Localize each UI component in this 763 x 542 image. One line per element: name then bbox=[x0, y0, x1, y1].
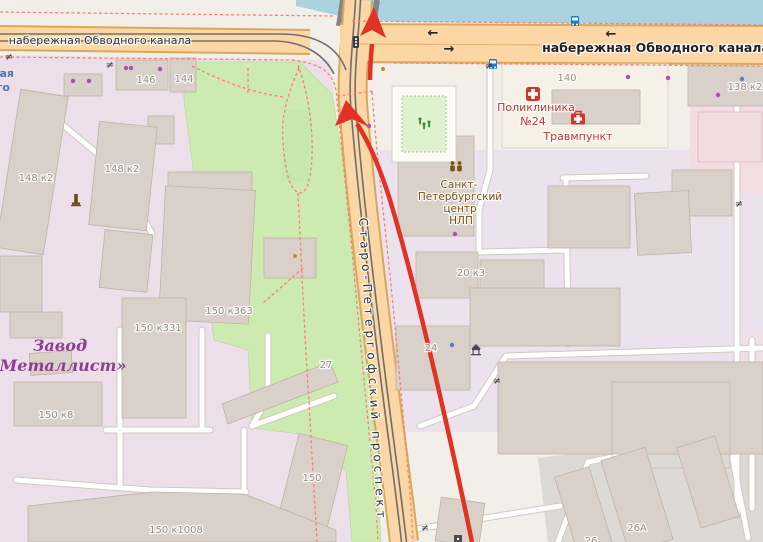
poi-label-nlp: центр bbox=[443, 203, 477, 215]
house-number: 150 к331 bbox=[134, 323, 181, 334]
building bbox=[548, 186, 630, 248]
water-label-fragment: ая bbox=[0, 67, 14, 80]
gate-icon: ≠ bbox=[485, 61, 493, 72]
poi-label-nlp: НЛП bbox=[449, 215, 473, 227]
house-number: 20 к3 bbox=[457, 268, 485, 279]
oneway-arrow: ← bbox=[428, 26, 439, 41]
building bbox=[99, 230, 153, 293]
gate-icon: ≠ bbox=[421, 523, 429, 534]
map-canvas[interactable]: набережная Обводного канала ← ← → → набе… bbox=[0, 0, 763, 542]
bus-stop-icon bbox=[571, 16, 579, 26]
building bbox=[0, 256, 42, 312]
house-number: 148 к2 bbox=[105, 164, 140, 175]
house-number: 138 к2 bbox=[728, 82, 763, 93]
house-number: 150 к363 bbox=[205, 306, 252, 317]
building bbox=[498, 362, 763, 454]
oneway-arrow: → bbox=[444, 42, 455, 57]
building-150k331 bbox=[122, 298, 186, 418]
clinic-cross-icon bbox=[526, 87, 540, 101]
poi-label-nlp: Петербургский bbox=[418, 191, 502, 203]
house-number: 24 bbox=[425, 343, 438, 354]
water-label-fragment: го bbox=[0, 81, 10, 94]
house-number: 150 к8 bbox=[39, 410, 74, 421]
building-148k2 bbox=[89, 121, 158, 230]
building bbox=[264, 238, 316, 278]
poi-label-factory: Завод bbox=[33, 336, 87, 355]
building bbox=[64, 74, 102, 96]
house-number: 140 bbox=[557, 73, 576, 84]
gate-icon: ≠ bbox=[106, 60, 114, 71]
poi-label-nlp: Санкт- bbox=[441, 179, 478, 191]
house-number: 27 bbox=[320, 360, 333, 371]
gate-icon: ≠ bbox=[493, 376, 501, 387]
route-line-2 bbox=[370, 44, 372, 80]
gate-icon: ≠ bbox=[735, 199, 743, 210]
house-number: 150 к1008 bbox=[149, 525, 203, 536]
building bbox=[698, 112, 762, 162]
house-number: 146 bbox=[136, 75, 155, 86]
gate-icon: ≠ bbox=[5, 52, 13, 63]
building bbox=[634, 191, 691, 256]
house-number: 26 bbox=[585, 536, 598, 542]
street-label-embankment-right: набережная Обводного канала bbox=[542, 40, 763, 55]
poi-label-polyclinic: Поликлиника bbox=[497, 101, 575, 114]
building bbox=[10, 312, 62, 338]
poi-label-factory: «Металлист» bbox=[0, 356, 126, 375]
building bbox=[470, 288, 620, 346]
house-number: 144 bbox=[174, 74, 193, 85]
house-number: 148 к2 bbox=[19, 173, 54, 184]
house-number: 26А bbox=[627, 523, 647, 534]
kiosk-icon bbox=[454, 535, 462, 542]
traffic-light-icon bbox=[353, 36, 359, 48]
street-label-embankment-left: набережная Обводного канала bbox=[9, 34, 191, 47]
poi-label-polyclinic: №24 bbox=[520, 115, 545, 128]
poi-label-trauma: Травмпункт bbox=[542, 130, 613, 143]
house-number: 150 bbox=[302, 473, 321, 484]
